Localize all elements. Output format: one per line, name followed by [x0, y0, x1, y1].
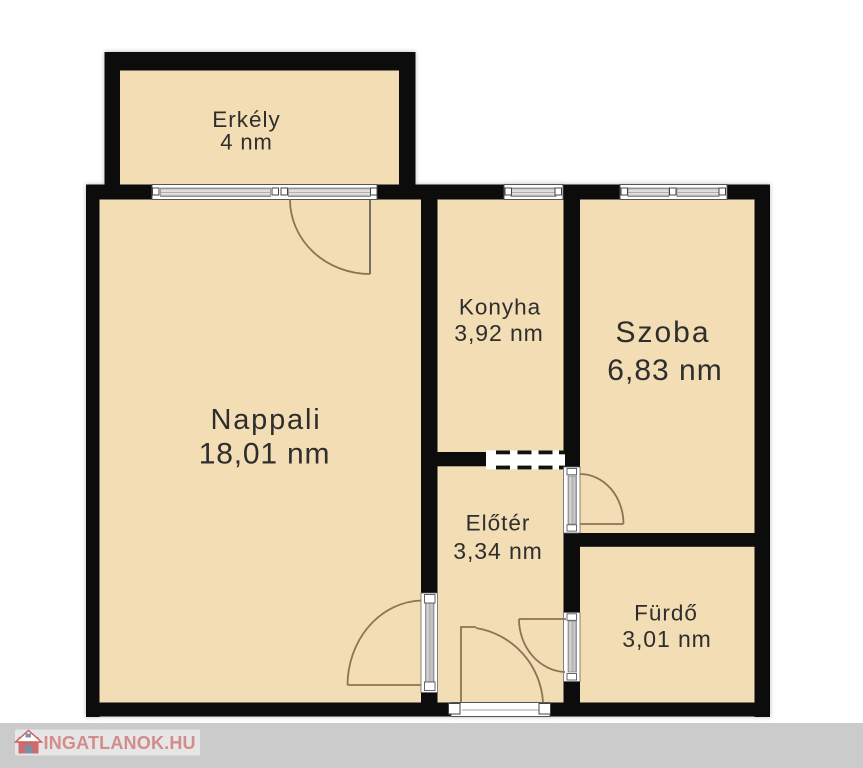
svg-text:4 nm: 4 nm: [220, 130, 273, 155]
svg-text:3,01 nm: 3,01 nm: [622, 626, 711, 652]
svg-text:INGATLANOK.HU: INGATLANOK.HU: [44, 733, 196, 753]
svg-text:18,01 nm: 18,01 nm: [199, 438, 330, 471]
svg-text:6,83 nm: 6,83 nm: [607, 354, 722, 387]
svg-text:Konyha: Konyha: [459, 295, 541, 320]
svg-text:3,34 nm: 3,34 nm: [453, 538, 542, 564]
svg-text:3,92 nm: 3,92 nm: [454, 320, 543, 346]
svg-text:Fürdő: Fürdő: [634, 601, 698, 626]
svg-text:Nappali: Nappali: [211, 404, 322, 436]
svg-text:Szoba: Szoba: [615, 316, 710, 349]
svg-text:Előtér: Előtér: [466, 511, 531, 536]
svg-text:Erkély: Erkély: [212, 107, 281, 132]
